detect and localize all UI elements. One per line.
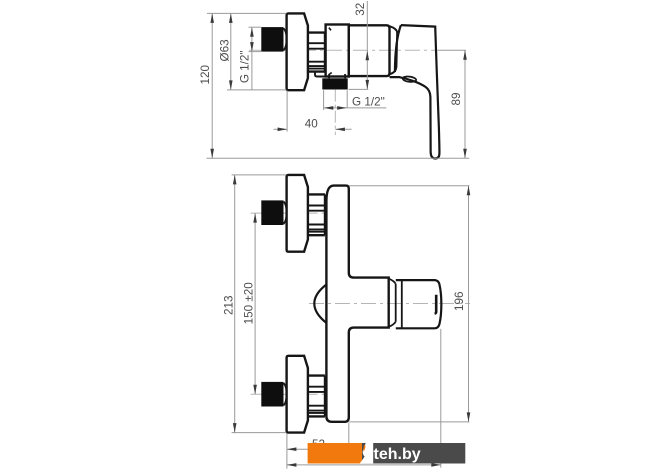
svg-text:Ø63: Ø63: [218, 39, 231, 61]
svg-text:32: 32: [354, 3, 367, 16]
svg-text:213: 213: [223, 296, 236, 316]
svg-text:150 ±20: 150 ±20: [242, 282, 255, 325]
svg-text:120: 120: [199, 65, 212, 85]
svg-text:G 1/2": G 1/2": [239, 50, 252, 83]
svg-text:G 1/2": G 1/2": [352, 96, 385, 109]
svg-text:40: 40: [305, 118, 319, 131]
svg-text:89: 89: [450, 92, 463, 105]
svg-text:teh.by: teh.by: [374, 446, 421, 463]
svg-text:196: 196: [453, 291, 466, 311]
